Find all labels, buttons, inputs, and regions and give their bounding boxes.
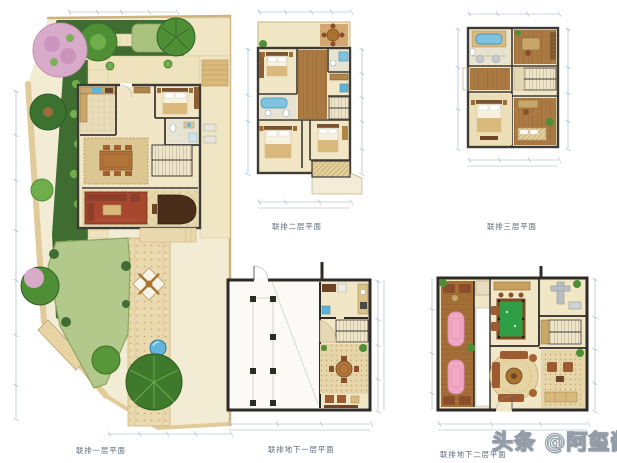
basement-one-plan — [224, 248, 390, 444]
basement-two-plan — [428, 252, 602, 452]
tatami-room — [541, 349, 585, 408]
sink — [477, 56, 484, 63]
billiard-table — [498, 300, 524, 338]
bar-stool — [509, 293, 514, 298]
armchair — [491, 306, 499, 315]
lounge-room — [514, 98, 556, 145]
side-table — [351, 396, 359, 403]
toilet — [470, 49, 475, 56]
tv-cabinet — [324, 405, 358, 408]
plant — [576, 349, 584, 357]
bath-sink — [187, 123, 191, 127]
bathroom — [329, 50, 349, 71]
balcony — [312, 161, 350, 177]
blossom-tree — [33, 23, 87, 77]
pouf — [529, 354, 537, 362]
stove — [105, 88, 113, 93]
armchair — [325, 395, 334, 403]
sink — [361, 290, 366, 295]
lightwell — [476, 308, 490, 406]
massage-table — [448, 312, 464, 346]
stairs — [541, 320, 581, 344]
wardrobe — [194, 87, 199, 109]
dining-table — [336, 361, 352, 377]
toilet — [283, 109, 289, 117]
sofa — [498, 394, 524, 402]
caption-second-floor: 联排二层平面 — [272, 223, 322, 231]
bed — [162, 88, 188, 114]
second-floor-plan — [240, 8, 374, 224]
washer — [340, 84, 348, 92]
first-floor-site-plan-panel — [8, 4, 240, 448]
blossom — [24, 268, 44, 288]
bathtub — [261, 98, 287, 108]
ac-unit — [204, 124, 216, 131]
chair — [354, 366, 359, 372]
bathtub — [476, 34, 502, 44]
plant — [573, 280, 581, 288]
plant — [439, 279, 447, 287]
shower — [339, 52, 348, 61]
desk — [518, 100, 538, 108]
counter — [358, 284, 368, 314]
terrace — [140, 228, 196, 242]
desk — [342, 126, 348, 140]
bench-seat — [545, 392, 577, 402]
first-floor-site-plan — [8, 4, 240, 448]
master-bathroom — [470, 30, 510, 64]
floor-plan-sheet: 联排一层平面 联排二层平面 联排三层平面 联排地下一层平面 联排地下二层平面 头… — [0, 0, 617, 463]
ac-unit — [204, 136, 216, 143]
stairs — [514, 68, 556, 90]
watermark: 头条 @阿玺酱 — [492, 426, 614, 456]
toilet — [170, 124, 176, 132]
shower — [189, 133, 197, 142]
plant — [467, 344, 475, 352]
chair — [525, 50, 531, 56]
second-floor-panel — [240, 8, 374, 224]
desk — [522, 38, 540, 50]
grand-piano — [158, 195, 196, 224]
pouf — [529, 389, 537, 397]
kitchen-sink — [92, 88, 101, 93]
bar-stool — [499, 293, 504, 298]
chair — [341, 378, 347, 383]
armchair — [337, 395, 346, 403]
plant — [546, 118, 554, 126]
sink — [265, 110, 271, 116]
bathroom — [259, 95, 296, 119]
armchair — [547, 362, 557, 372]
chair — [341, 356, 347, 361]
caption-basement-one: 联排地下一层平面 — [268, 446, 334, 454]
entry-door — [254, 266, 268, 280]
cabinet — [330, 74, 348, 80]
armchair — [130, 194, 140, 202]
entry-cabinet — [134, 87, 150, 93]
massage-table — [448, 360, 464, 394]
stove — [360, 302, 367, 309]
sofa — [492, 362, 500, 388]
third-floor-panel — [438, 8, 580, 224]
washer — [322, 306, 330, 314]
treadmill — [557, 282, 564, 304]
bar-counter — [494, 282, 530, 290]
armchair — [459, 284, 471, 293]
basement-one-panel — [224, 248, 390, 444]
study — [514, 30, 556, 64]
cabinet — [322, 284, 336, 292]
sink — [493, 56, 500, 63]
bar-stool — [519, 293, 524, 298]
tea-table — [556, 376, 564, 382]
basement-two-panel — [428, 252, 602, 452]
plant — [321, 345, 327, 351]
caption-third-floor: 联排三层平面 — [487, 223, 537, 231]
piano-bench — [152, 204, 157, 214]
caption-first-floor: 联排一层平面 — [76, 447, 126, 455]
master-bedroom — [470, 94, 512, 145]
stairs — [329, 97, 349, 119]
plant — [515, 30, 521, 36]
green-tree — [126, 354, 182, 410]
stairs — [152, 145, 192, 176]
bed-bench — [480, 136, 498, 140]
corridor-floor — [470, 68, 510, 90]
sink — [330, 60, 336, 66]
house-first-floor — [78, 85, 200, 228]
armchair — [491, 322, 499, 331]
chair — [523, 109, 529, 115]
sofa — [87, 194, 127, 201]
coffee-table — [103, 205, 121, 215]
third-floor-plan — [438, 8, 580, 224]
fridge — [338, 284, 346, 292]
wood-deck — [202, 60, 228, 86]
green-tree — [92, 346, 120, 374]
side-table — [452, 295, 458, 301]
dining-table — [100, 145, 132, 176]
hall-floor — [298, 50, 327, 119]
armchair — [563, 362, 573, 372]
sofa — [500, 351, 528, 359]
shrub — [31, 179, 53, 201]
chair — [329, 366, 334, 372]
armchair — [459, 396, 471, 405]
green-tree — [157, 18, 195, 56]
plant — [359, 344, 367, 352]
armchair — [443, 396, 455, 405]
closet — [476, 281, 490, 295]
dining-area — [320, 344, 368, 394]
stairs — [320, 320, 368, 342]
lounge — [324, 395, 359, 408]
stair-cabinet — [541, 320, 549, 344]
exercise-bench — [569, 302, 581, 309]
spa-room — [439, 279, 475, 407]
